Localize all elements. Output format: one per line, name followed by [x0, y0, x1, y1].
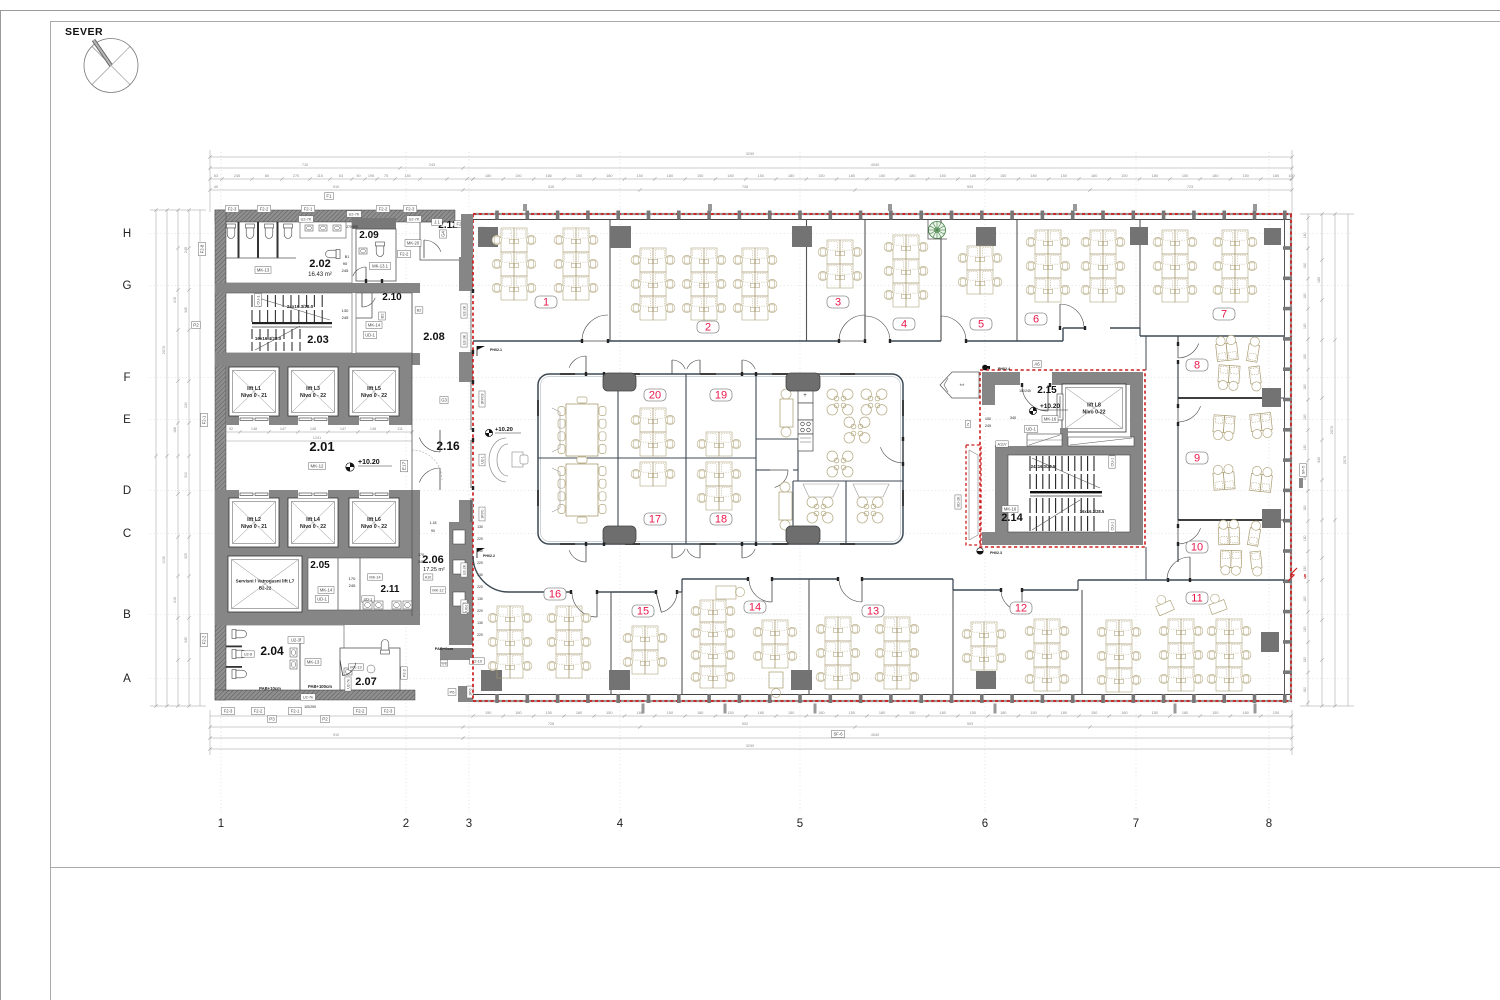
svg-text:lift L8: lift L8 [1087, 402, 1101, 408]
svg-text:4040: 4040 [871, 733, 879, 737]
svg-text:180: 180 [970, 174, 976, 178]
svg-text:170: 170 [349, 576, 356, 581]
svg-text:723: 723 [1187, 185, 1193, 189]
svg-text:F: F [123, 372, 130, 384]
svg-text:B1: B1 [345, 255, 349, 259]
svg-text:245: 245 [985, 424, 991, 428]
svg-text:180: 180 [818, 711, 824, 715]
svg-text:2070: 2070 [1330, 426, 1334, 434]
svg-text:180: 180 [546, 174, 552, 178]
svg-text:F2-2: F2-2 [402, 669, 406, 677]
svg-text:240: 240 [184, 402, 188, 408]
svg-text:U2-7k: U2-7k [303, 695, 313, 699]
svg-text:188: 188 [173, 427, 177, 433]
svg-text:150: 150 [788, 711, 794, 715]
svg-text:F2-2: F2-2 [202, 635, 207, 644]
svg-text:150: 150 [515, 174, 521, 178]
svg-text:F2-1: F2-1 [304, 207, 313, 212]
svg-text:4: 4 [901, 319, 907, 331]
svg-text:F2-2: F2-2 [254, 709, 263, 714]
svg-text:16: 16 [549, 589, 561, 601]
svg-text:147: 147 [280, 427, 286, 431]
svg-text:F2-3: F2-3 [224, 709, 233, 714]
svg-text:2.15: 2.15 [1037, 385, 1057, 396]
svg-text:150: 150 [1273, 711, 1279, 715]
svg-text:17: 17 [649, 514, 661, 526]
svg-text:180: 180 [1303, 444, 1307, 450]
svg-text:180: 180 [1303, 535, 1307, 541]
svg-text:10: 10 [1191, 542, 1203, 554]
svg-text:180: 180 [1303, 293, 1307, 299]
svg-text:903: 903 [967, 185, 973, 189]
svg-text:63: 63 [339, 174, 343, 178]
svg-text:+10.20: +10.20 [1040, 403, 1060, 410]
svg-text:180: 180 [1000, 711, 1006, 715]
svg-text:24x16.3/28.0: 24x16.3/28.0 [287, 304, 314, 309]
svg-text:195: 195 [368, 174, 374, 178]
svg-text:B2: B2 [379, 313, 384, 319]
svg-text:145: 145 [404, 174, 410, 178]
svg-text:180: 180 [697, 711, 703, 715]
svg-text:180: 180 [727, 174, 733, 178]
svg-text:180: 180 [1303, 566, 1307, 572]
svg-text:100: 100 [304, 705, 310, 709]
svg-text:E: E [123, 414, 131, 426]
svg-text:180: 180 [1121, 711, 1127, 715]
svg-text:2.08: 2.08 [423, 331, 444, 343]
svg-text:UD-1K: UD-1K [956, 496, 960, 507]
svg-text:415: 415 [173, 297, 177, 303]
svg-text:UG1: UG1 [464, 604, 468, 611]
svg-text:CU-1: CU-1 [1110, 458, 1114, 467]
svg-text:80: 80 [265, 174, 269, 178]
svg-text:8: 8 [1266, 818, 1272, 830]
svg-text:+: + [803, 393, 807, 399]
svg-text:20: 20 [649, 390, 661, 402]
svg-text:245: 245 [349, 583, 356, 588]
svg-text:W8: W8 [441, 661, 446, 665]
svg-text:180: 180 [1303, 232, 1307, 238]
svg-text:U2-7K: U2-7K [301, 217, 312, 221]
svg-text:150: 150 [1061, 174, 1067, 178]
svg-text:B: B [123, 609, 131, 621]
svg-text:180: 180 [1212, 174, 1218, 178]
svg-text:PAB+100cm: PAB+100cm [308, 684, 332, 689]
svg-text:150: 150 [879, 174, 885, 178]
svg-text:170: 170 [418, 553, 424, 557]
svg-text:F2-8: F2-8 [200, 244, 205, 253]
svg-text:Nivo 0 - 22: Nivo 0 - 22 [361, 524, 387, 530]
svg-text:G3: G3 [441, 398, 447, 403]
svg-text:6: 6 [982, 818, 988, 830]
svg-text:PH02.4: PH02.4 [998, 367, 1010, 371]
svg-text:P2: P2 [193, 323, 199, 328]
svg-text:150: 150 [667, 711, 673, 715]
svg-text:U2-2K: U2-2K [462, 564, 466, 575]
svg-text:150: 150 [636, 174, 642, 178]
svg-text:180: 180 [1303, 687, 1307, 693]
svg-text:90: 90 [431, 529, 435, 533]
svg-text:Nivo 0 - 22: Nivo 0 - 22 [361, 393, 387, 399]
svg-text:2.11: 2.11 [381, 584, 400, 595]
svg-text:PH02.3: PH02.3 [990, 551, 1002, 555]
svg-text:5: 5 [797, 818, 803, 830]
svg-text:2.07: 2.07 [355, 676, 376, 688]
svg-text:13: 13 [867, 606, 879, 618]
svg-text:111: 111 [397, 427, 403, 431]
svg-text:180: 180 [1303, 354, 1307, 360]
svg-text:lift L1: lift L1 [247, 386, 261, 392]
svg-text:12: 12 [1015, 603, 1027, 615]
svg-text:lift L2: lift L2 [247, 517, 261, 523]
svg-text:MK-13.1: MK-13.1 [372, 264, 388, 269]
svg-text:2: 2 [705, 322, 711, 334]
svg-text:345: 345 [184, 307, 188, 313]
svg-text:220: 220 [477, 585, 483, 589]
svg-text:150: 150 [1152, 711, 1158, 715]
svg-text:lift L5: lift L5 [367, 386, 381, 392]
svg-text:4040: 4040 [871, 163, 879, 167]
svg-text:220: 220 [477, 609, 483, 613]
svg-text:180: 180 [788, 174, 794, 178]
svg-text:F2-2: F2-2 [356, 709, 365, 714]
svg-text:F2-3: F2-3 [406, 207, 415, 212]
svg-text:MK-14: MK-14 [320, 588, 333, 593]
svg-text:245: 245 [234, 174, 240, 178]
svg-text:F1: F1 [326, 194, 332, 199]
svg-text:CU-1: CU-1 [1110, 522, 1114, 531]
svg-text:315: 315 [548, 185, 554, 189]
svg-text:CU-1: CU-1 [255, 295, 260, 305]
svg-text:SF-6: SF-6 [833, 732, 843, 737]
svg-text:8: 8 [1194, 360, 1200, 372]
svg-text:180: 180 [909, 174, 915, 178]
svg-text:710: 710 [302, 163, 308, 167]
svg-text:3290: 3290 [746, 152, 754, 156]
svg-text:G4: G4 [441, 231, 446, 237]
svg-text:130: 130 [342, 308, 349, 313]
svg-text:B2: B2 [417, 308, 422, 312]
svg-text:P3: P3 [269, 717, 275, 722]
svg-text:903: 903 [967, 722, 973, 726]
svg-text:U2-8: U2-8 [244, 652, 252, 656]
svg-text:63: 63 [214, 174, 218, 178]
svg-text:1: 1 [543, 297, 549, 309]
svg-text:90: 90 [343, 261, 348, 266]
svg-text:150: 150 [1212, 711, 1218, 715]
svg-text:148: 148 [251, 427, 257, 431]
svg-text:90: 90 [356, 174, 360, 178]
svg-text:150: 150 [909, 711, 915, 715]
svg-text:2.14: 2.14 [1001, 512, 1023, 524]
svg-text:150: 150 [939, 174, 945, 178]
svg-text:16.43 m²: 16.43 m² [308, 272, 332, 278]
svg-text:180: 180 [1303, 263, 1307, 269]
svg-text:PH02.1: PH02.1 [490, 348, 502, 352]
svg-text:92: 92 [229, 427, 233, 431]
svg-text:MK-14: MK-14 [369, 575, 380, 579]
svg-text:150: 150 [1030, 711, 1036, 715]
svg-text:905: 905 [352, 225, 358, 229]
svg-text:F2-2: F2-2 [400, 252, 409, 257]
svg-text:180: 180 [667, 174, 673, 178]
svg-text:150: 150 [485, 711, 491, 715]
svg-text:728: 728 [548, 722, 554, 726]
svg-text:A: A [123, 673, 131, 685]
svg-text:180: 180 [1303, 323, 1307, 329]
svg-text:130: 130 [477, 621, 483, 625]
svg-text:245: 245 [184, 247, 188, 253]
svg-text:245: 245 [342, 268, 349, 273]
svg-text:+10.20: +10.20 [495, 427, 513, 433]
svg-text:§: § [1304, 574, 1307, 580]
svg-text:1035: 1035 [162, 556, 166, 564]
svg-text:45: 45 [214, 185, 218, 189]
svg-text:MK-20: MK-20 [407, 241, 420, 246]
svg-text:150: 150 [576, 174, 582, 178]
svg-text:220: 220 [477, 633, 483, 637]
svg-text:150: 150 [970, 711, 976, 715]
svg-text:3P.Fb: 3P.Fb [480, 510, 484, 519]
svg-text:245: 245 [418, 560, 424, 564]
svg-text:MK-13: MK-13 [350, 665, 361, 669]
svg-text:150: 150 [606, 711, 612, 715]
svg-text:MK-12: MK-12 [311, 464, 324, 469]
svg-text:180: 180 [485, 174, 491, 178]
svg-text:U2-7K: U2-7K [349, 212, 360, 216]
svg-text:Nivo 0 - 21: Nivo 0 - 21 [241, 524, 267, 530]
svg-text:2.03: 2.03 [307, 334, 328, 346]
svg-text:G: G [123, 280, 132, 292]
svg-text:MK-16: MK-16 [1004, 507, 1017, 512]
svg-text:345: 345 [184, 637, 188, 643]
svg-text:180: 180 [1030, 174, 1036, 178]
svg-text:SEVER: SEVER [65, 26, 103, 38]
svg-text:F2-2: F2-2 [379, 207, 388, 212]
svg-text:Nivo 0 - 22: Nivo 0 - 22 [300, 524, 326, 530]
svg-text:150: 150 [546, 711, 552, 715]
svg-text:19: 19 [715, 390, 727, 402]
svg-text:150: 150 [727, 711, 733, 715]
svg-text:3P.Fb9: 3P.Fb9 [480, 394, 484, 405]
svg-text:150: 150 [758, 174, 764, 178]
svg-text:UD-1: UD-1 [317, 597, 327, 602]
svg-text:2.06: 2.06 [422, 554, 443, 566]
svg-text:6: 6 [1033, 314, 1039, 326]
svg-text:U2-7K: U2-7K [409, 217, 420, 221]
svg-text:180: 180 [1303, 384, 1307, 390]
svg-text:243: 243 [429, 163, 435, 167]
svg-text:150: 150 [1121, 174, 1127, 178]
svg-text:MK-14: MK-14 [368, 323, 381, 328]
svg-text:PH02.2: PH02.2 [483, 554, 495, 558]
svg-text:16x16.4/28.0: 16x16.4/28.0 [255, 336, 282, 341]
svg-text:180: 180 [1273, 174, 1279, 178]
svg-text:U2-3f: U2-3f [291, 638, 302, 643]
svg-text:147: 147 [340, 427, 346, 431]
svg-text:U2-1: U2-1 [480, 456, 484, 464]
svg-text:15: 15 [637, 606, 649, 618]
svg-text:B2-22: B2-22 [259, 585, 272, 590]
svg-text:24x16.3/28.5: 24x16.3/28.5 [1031, 464, 1056, 469]
svg-text:270: 270 [346, 225, 352, 229]
svg-text:P6: P6 [450, 689, 456, 694]
svg-text:180: 180 [606, 174, 612, 178]
svg-text:180: 180 [1242, 711, 1248, 715]
svg-text:150: 150 [697, 174, 703, 178]
svg-text:9: 9 [1194, 453, 1200, 465]
svg-text:220: 220 [477, 561, 483, 565]
svg-text:150: 150 [849, 711, 855, 715]
svg-text:Nivo 0-22: Nivo 0-22 [1082, 409, 1105, 415]
svg-text:130: 130 [477, 525, 483, 529]
svg-text:75: 75 [384, 174, 388, 178]
svg-text:245: 245 [342, 315, 349, 320]
svg-text:MK-12: MK-12 [432, 588, 443, 592]
svg-text:F2-1: F2-1 [202, 415, 207, 424]
svg-text:150: 150 [1288, 174, 1294, 178]
svg-text:340: 340 [1010, 416, 1016, 420]
svg-text:Nivo 0 - 22: Nivo 0 - 22 [300, 393, 326, 399]
svg-text:PAB+0cm: PAB+0cm [435, 646, 454, 651]
svg-text:150: 150 [1182, 174, 1188, 178]
svg-text:2.09: 2.09 [359, 230, 379, 241]
svg-text:F2-3: F2-3 [228, 207, 237, 212]
svg-text:180: 180 [1152, 174, 1158, 178]
svg-text:lift L3: lift L3 [306, 386, 320, 392]
svg-text:1241: 1241 [313, 436, 321, 440]
svg-text:18: 18 [715, 514, 727, 526]
svg-text:UD-1: UD-1 [1026, 427, 1036, 432]
svg-text:A6: A6 [1034, 362, 1040, 367]
svg-text:180: 180 [515, 711, 521, 715]
svg-text:17.25 m²: 17.25 m² [423, 567, 445, 573]
svg-text:180: 180 [1061, 711, 1067, 715]
svg-text:150: 150 [1000, 174, 1006, 178]
svg-text:2.05: 2.05 [310, 560, 330, 571]
svg-text:115: 115 [317, 174, 323, 178]
svg-text:148: 148 [310, 427, 316, 431]
svg-text:270: 270 [293, 174, 299, 178]
svg-text:F2-3: F2-3 [384, 709, 393, 714]
svg-text:150: 150 [1242, 174, 1248, 178]
svg-text:180: 180 [1303, 414, 1307, 420]
svg-text:F2-1: F2-1 [291, 709, 300, 714]
svg-text:MK-13: MK-13 [257, 268, 270, 273]
svg-text:180: 180 [849, 174, 855, 178]
svg-text:MK-16: MK-16 [1044, 417, 1057, 422]
svg-text:340: 340 [1317, 457, 1321, 463]
svg-text:245: 245 [1025, 389, 1031, 393]
svg-text:A10: A10 [425, 575, 431, 579]
svg-text:180: 180 [1317, 277, 1321, 283]
svg-text:302: 302 [184, 472, 188, 478]
svg-text:180: 180 [1091, 174, 1097, 178]
svg-text:P2: P2 [322, 717, 328, 722]
svg-text:415: 415 [173, 597, 177, 603]
svg-text:SF-5: SF-5 [1300, 465, 1305, 474]
svg-text:U2-3K: U2-3K [462, 334, 466, 345]
svg-text:180: 180 [1303, 657, 1307, 663]
svg-text:UD-1: UD-1 [365, 333, 375, 338]
svg-text:5: 5 [978, 319, 984, 331]
svg-text:J.1: J.1 [434, 220, 440, 225]
svg-text:3P.6: 3P.6 [468, 689, 472, 696]
svg-text:2070: 2070 [162, 346, 166, 354]
svg-text:H: H [123, 228, 131, 240]
svg-text:910: 910 [333, 733, 339, 737]
svg-text:U2-7k: U2-7k [346, 679, 350, 689]
svg-text:Servisni / Vatrogasni lift L7: Servisni / Vatrogasni lift L7 [236, 578, 295, 583]
svg-text:148: 148 [370, 427, 376, 431]
svg-text:3: 3 [466, 818, 472, 830]
svg-text:+10.20: +10.20 [358, 459, 380, 466]
svg-text:2070: 2070 [1343, 456, 1347, 464]
svg-text:lift L6: lift L6 [367, 517, 381, 523]
svg-text:16x16.3/28.5: 16x16.3/28.5 [1080, 509, 1105, 514]
svg-text:2: 2 [403, 818, 409, 830]
svg-text:2.02: 2.02 [309, 258, 330, 270]
svg-text:PAB+10cm: PAB+10cm [259, 686, 281, 691]
svg-text:910: 910 [333, 185, 339, 189]
svg-text:220: 220 [477, 537, 483, 541]
svg-text:150: 150 [1091, 711, 1097, 715]
svg-text:Nivo 0 - 21: Nivo 0 - 21 [241, 393, 267, 399]
svg-text:180: 180 [939, 711, 945, 715]
svg-text:E17: E17 [402, 461, 407, 470]
svg-text:180: 180 [758, 711, 764, 715]
svg-text:C: C [123, 528, 131, 540]
svg-text:11: 11 [1191, 593, 1202, 605]
svg-text:7: 7 [1221, 309, 1227, 321]
svg-text:lift L4: lift L4 [306, 517, 320, 523]
svg-text:2.10: 2.10 [382, 292, 402, 303]
svg-text:150: 150 [1019, 389, 1025, 393]
svg-text:7: 7 [1133, 818, 1139, 830]
svg-text:3290: 3290 [746, 744, 754, 748]
svg-text:MK-13: MK-13 [307, 660, 320, 665]
svg-text:180: 180 [1303, 626, 1307, 632]
svg-text:180: 180 [879, 711, 885, 715]
svg-text:130: 130 [477, 597, 483, 601]
svg-text:**: ** [960, 384, 965, 390]
svg-text:3: 3 [835, 297, 841, 309]
svg-text:A11V: A11V [997, 442, 1006, 446]
svg-text:1: 1 [218, 818, 224, 830]
svg-text:728: 728 [742, 185, 748, 189]
svg-text:1.18: 1.18 [430, 521, 437, 525]
svg-text:F2-2: F2-2 [260, 207, 269, 212]
svg-text:U2-2K: U2-2K [462, 305, 466, 316]
svg-text:2.04: 2.04 [260, 644, 284, 658]
svg-text:14: 14 [749, 602, 761, 614]
svg-text:180: 180 [1303, 505, 1307, 511]
svg-text:150: 150 [985, 417, 991, 421]
svg-text:180: 180 [576, 711, 582, 715]
svg-text:180: 180 [1303, 596, 1307, 602]
svg-text:325: 325 [184, 553, 188, 559]
svg-text:150: 150 [818, 174, 824, 178]
svg-text:290: 290 [310, 705, 316, 709]
svg-text:180: 180 [1182, 711, 1188, 715]
svg-text:4: 4 [617, 818, 624, 830]
svg-text:902: 902 [742, 722, 748, 726]
svg-text:D: D [123, 485, 131, 497]
